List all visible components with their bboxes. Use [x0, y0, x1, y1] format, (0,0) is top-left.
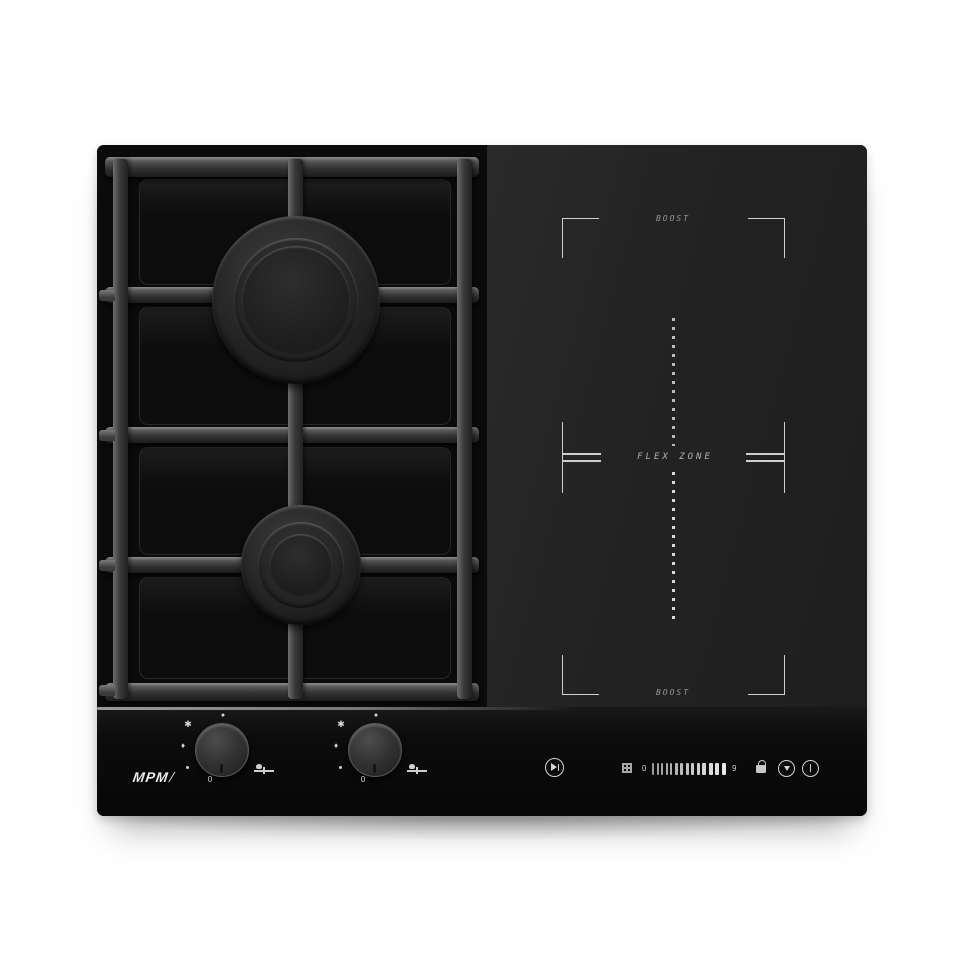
power-slider-bars[interactable] — [652, 762, 730, 775]
power-level-bar[interactable] — [675, 763, 678, 775]
induction-flex-zone: BOOST FLEX ZONE BOOST — [487, 145, 867, 707]
power-icon[interactable] — [802, 760, 819, 777]
burner-cap — [242, 246, 350, 354]
power-level-bar[interactable] — [670, 763, 672, 775]
cooktop: BOOST FLEX ZONE BOOST MPM/ ● ✱ ♦ 0 — [97, 145, 867, 816]
power-level-min-label: 0 — [642, 764, 646, 773]
gas-hob-section — [97, 145, 487, 707]
induction-touch-controls: 0 9 — [97, 707, 867, 816]
power-level-bar[interactable] — [722, 763, 726, 775]
burner-cap — [270, 534, 332, 596]
grate-bar-end — [99, 685, 115, 696]
grate-bar-end — [99, 290, 115, 301]
flex-zone-dotted-line — [672, 472, 675, 622]
grate-frame-right — [457, 159, 472, 699]
flex-zone-label: FLEX ZONE — [637, 452, 713, 462]
product-photo: BOOST FLEX ZONE BOOST MPM/ ● ✱ ♦ 0 — [0, 0, 960, 960]
power-level-bar[interactable] — [702, 763, 706, 775]
power-level-bar[interactable] — [652, 763, 654, 775]
grate-bar-end — [99, 560, 115, 571]
power-level-bar[interactable] — [691, 763, 694, 775]
grid-icon[interactable] — [622, 763, 632, 773]
power-level-max-label: 9 — [732, 764, 736, 773]
zone-corner-top-right — [748, 218, 785, 258]
power-level-bar[interactable] — [661, 763, 663, 775]
boost-label-bottom: BOOST — [656, 688, 690, 697]
pause-play-icon[interactable] — [545, 758, 564, 777]
boost-label-top: BOOST — [656, 214, 690, 223]
power-level-bar[interactable] — [686, 763, 689, 775]
control-panel: MPM/ ● ✱ ♦ 0 ● ✱ ♦ 0 — [97, 707, 867, 816]
timer-icon[interactable] — [778, 760, 795, 777]
power-level-bar[interactable] — [666, 763, 668, 775]
lock-icon[interactable] — [756, 765, 766, 773]
power-level-bar[interactable] — [715, 763, 719, 775]
power-level-bar[interactable] — [709, 763, 713, 775]
power-level-bar[interactable] — [697, 763, 700, 775]
zone-corner-bottom-right — [748, 655, 785, 695]
power-level-bar[interactable] — [657, 763, 659, 775]
grate-bar-end — [99, 430, 115, 441]
zone-divider-right — [745, 422, 785, 493]
zone-corner-top-left — [562, 218, 599, 258]
zone-corner-bottom-left — [562, 655, 599, 695]
zone-divider-left — [562, 422, 602, 493]
gas-burner-large — [212, 216, 380, 384]
gas-burner-small — [241, 505, 361, 625]
grate-frame-left — [113, 159, 128, 699]
flex-zone-dotted-line — [672, 318, 675, 446]
power-level-bar[interactable] — [680, 763, 683, 775]
